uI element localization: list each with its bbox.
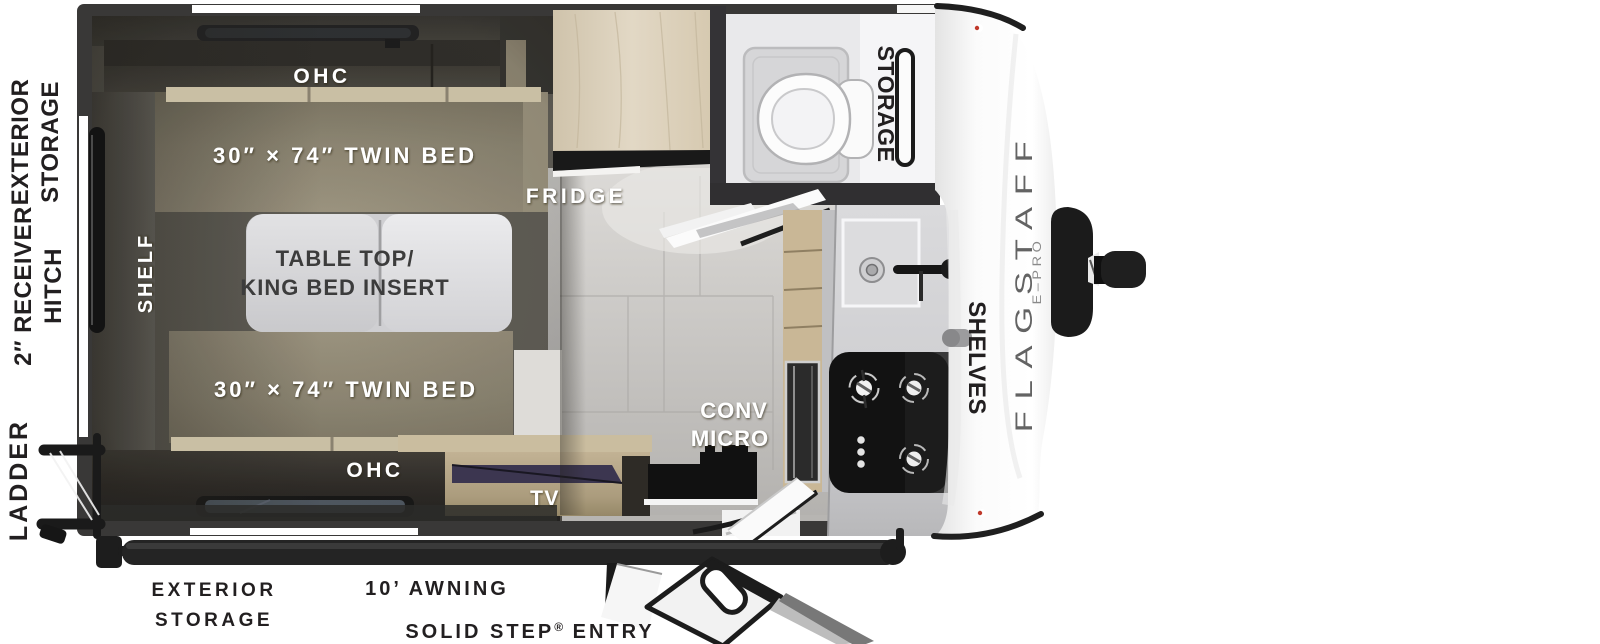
svg-text:2″ RECEIVER: 2″ RECEIVER bbox=[10, 206, 37, 366]
svg-text:TABLE TOP/: TABLE TOP/ bbox=[276, 246, 415, 271]
svg-text:SOLID STEP® ENTRY: SOLID STEP® ENTRY bbox=[405, 620, 654, 643]
svg-text:OHC: OHC bbox=[293, 65, 350, 88]
svg-text:10’ AWNING: 10’ AWNING bbox=[365, 578, 509, 600]
svg-text:30″ × 74″ TWIN BED: 30″ × 74″ TWIN BED bbox=[213, 143, 477, 168]
svg-text:SHELF: SHELF bbox=[135, 233, 157, 314]
svg-text:TV: TV bbox=[530, 487, 560, 510]
svg-text:MICRO: MICRO bbox=[691, 426, 769, 451]
svg-text:30″ × 74″ TWIN BED: 30″ × 74″ TWIN BED bbox=[214, 377, 478, 402]
svg-text:SHELVES: SHELVES bbox=[963, 301, 990, 415]
svg-text:HITCH: HITCH bbox=[40, 248, 67, 324]
svg-text:STORAGE: STORAGE bbox=[155, 610, 273, 631]
svg-text:STORAGE: STORAGE bbox=[37, 81, 64, 203]
svg-text:KING BED INSERT: KING BED INSERT bbox=[240, 275, 449, 300]
svg-text:FRIDGE: FRIDGE bbox=[526, 185, 626, 208]
svg-text:OHC: OHC bbox=[346, 459, 403, 482]
svg-text:LADDER: LADDER bbox=[5, 419, 33, 541]
svg-text:EXTERIOR: EXTERIOR bbox=[151, 580, 276, 601]
svg-text:E–PRO: E–PRO bbox=[1030, 238, 1044, 305]
svg-text:CONV: CONV bbox=[700, 398, 768, 423]
svg-text:EXTERIOR: EXTERIOR bbox=[7, 79, 34, 206]
